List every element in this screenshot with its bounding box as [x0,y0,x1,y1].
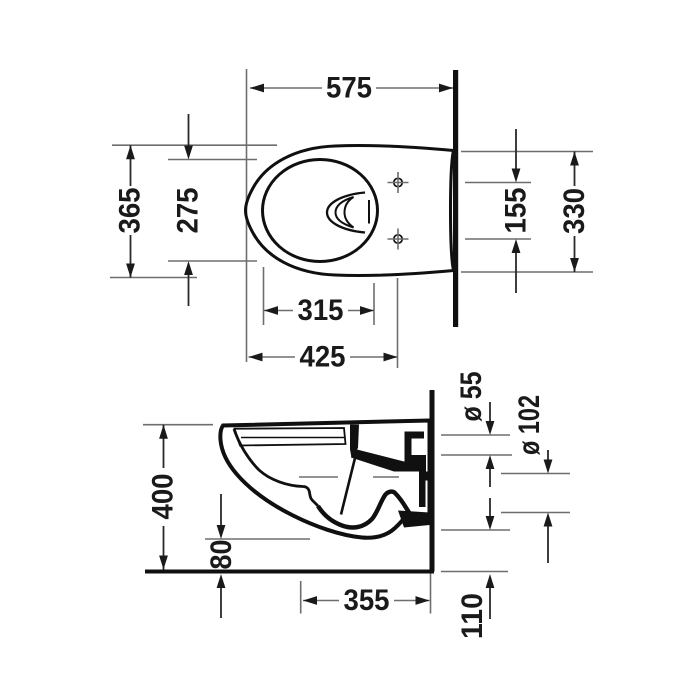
arrowhead-down [126,264,135,278]
arrowhead-left [249,353,263,362]
arrowhead-left [250,84,264,93]
dim-fixing-hole-spacing: 155 [500,129,533,293]
dim-label-315: 315 [298,294,344,327]
arrowhead-up [126,145,135,159]
dim-label-575: 575 [326,72,372,105]
wall-line-top-view [453,70,458,327]
arrowhead-right [384,353,398,362]
dim-label-330: 330 [558,188,591,234]
arrowhead-down [184,146,193,160]
arrowhead-right [360,306,374,315]
wall-line-side-view [430,390,435,572]
dim-inlet-diameter: ø 55 [455,372,494,488]
dim-outlet-offset: 110 [456,498,494,639]
side-view: 400 80 355 [143,372,570,640]
dim-label-diameter-55: ø 55 [455,372,488,422]
arrowhead-down [570,258,579,272]
top-view: 575 365 275 [110,69,593,374]
section-outlet-bottom [398,511,430,528]
dim-label-diameter-102: ø 102 [513,395,546,455]
section-inlet-socket [405,432,427,463]
dim-projection: 355 [301,574,431,618]
arrowhead-up [570,152,579,166]
trap-curve [318,492,411,528]
arrowhead-down [486,421,495,435]
arrowhead-up [512,239,521,253]
mounting-hole-top [388,172,409,193]
inner-bowl-outline [263,160,378,262]
dim-label-275: 275 [172,188,205,234]
inner-bowl-curve [234,429,318,506]
technical-drawing: 575 365 275 [0,0,700,700]
dim-label-355: 355 [344,584,390,617]
dim-height: 400 [143,425,213,570]
flush-opening-crescent [336,197,354,228]
arrowhead-up [486,574,495,588]
arrowhead-down [486,516,495,530]
arrowhead-up [159,425,168,439]
dim-label-400: 400 [147,474,180,520]
mounting-hole-bottom [388,229,409,250]
arrowhead-left [303,596,317,605]
flush-stream-line [341,456,356,515]
arrowhead-up [544,513,553,527]
dim-rear-width: 330 [558,152,591,273]
dim-label-80: 80 [205,540,238,570]
dim-overall-length: 575 [250,72,453,105]
arrowhead-up [486,455,495,469]
dim-underside-clearance: 80 [205,494,310,618]
arrowhead-left [264,306,278,315]
drawing-page: 575 365 275 [0,0,700,700]
section-outlet-wall [419,472,426,508]
arrowhead-up [184,261,193,275]
dim-outlet-diameter: ø 102 [513,395,552,563]
arrowhead-down [159,556,168,570]
arrowhead-right [439,84,453,93]
flush-opening [327,193,369,233]
flush-opening-outer [327,193,365,233]
section-outlet-top [394,462,426,472]
dim-label-155: 155 [500,188,533,234]
section-outlet-ring [426,472,430,481]
arrowhead-down [217,525,226,539]
dim-label-365: 365 [114,188,147,234]
dim-label-110: 110 [456,593,489,639]
arrowhead-down [544,460,553,474]
floor-line [145,570,434,574]
dim-label-425: 425 [300,341,346,374]
arrowhead-down [512,169,521,183]
arrowhead-right [416,596,430,605]
arrowhead-up [217,574,226,588]
